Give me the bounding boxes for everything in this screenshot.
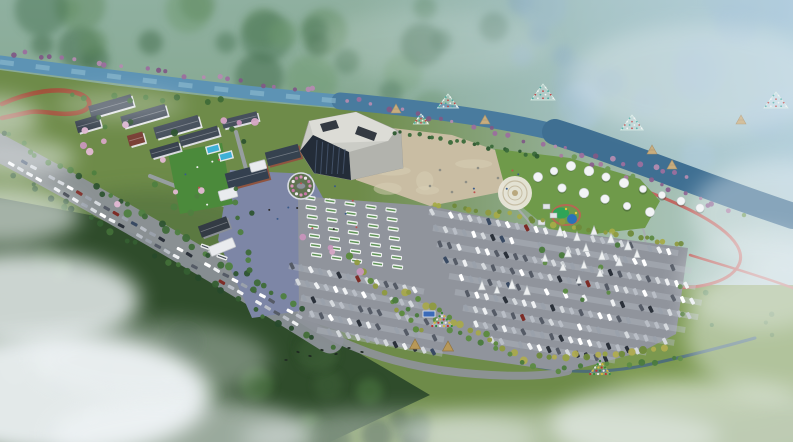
tree [108, 193, 113, 198]
tree [615, 242, 621, 248]
festival-flag [436, 318, 438, 320]
tree [603, 230, 607, 234]
cherry-tree [160, 157, 166, 163]
cherry-tree [220, 117, 227, 124]
tree [289, 326, 294, 331]
tree [651, 347, 656, 352]
riverbank-shrub [39, 55, 44, 60]
tree [406, 307, 411, 312]
tree [124, 209, 132, 217]
tree [598, 265, 603, 270]
tree [182, 234, 190, 242]
person [218, 159, 220, 161]
tree [517, 214, 522, 219]
tree [254, 307, 259, 312]
tree [603, 351, 608, 356]
festival-flag [599, 370, 601, 372]
tree [225, 262, 233, 270]
festival-flag [592, 370, 594, 372]
riverbank-shrub [685, 175, 689, 179]
tree [331, 345, 336, 350]
playground-pond [567, 214, 577, 224]
tree [466, 335, 472, 341]
tree [67, 167, 74, 174]
tree [518, 150, 521, 153]
riverbank-shrub [119, 64, 123, 68]
flower-cluster [290, 184, 293, 187]
gravel-vehicle [429, 185, 432, 188]
tree [171, 203, 178, 210]
tree [184, 268, 191, 275]
tree [619, 351, 625, 357]
riverbank-shrub [72, 57, 76, 61]
tree [229, 126, 235, 132]
tree [678, 241, 683, 246]
tree [680, 312, 685, 317]
tree [408, 318, 413, 323]
riverbank-shrub [541, 142, 546, 147]
riverbank-shrub [239, 78, 243, 82]
person [473, 188, 475, 190]
camp-cabin [550, 213, 557, 218]
tree [520, 360, 525, 365]
tree [546, 355, 551, 360]
prayer-flag [454, 102, 456, 104]
riverbank-shrub [579, 153, 584, 158]
dome-tent [533, 172, 542, 181]
festival-flag [448, 322, 450, 324]
camp-cabin [543, 204, 550, 209]
tree [261, 283, 267, 289]
tree [399, 310, 405, 316]
tree [205, 253, 210, 258]
tree [572, 351, 579, 358]
tree [89, 215, 94, 220]
tree [303, 332, 310, 339]
person [198, 187, 200, 189]
tree [430, 135, 434, 139]
person [511, 169, 513, 171]
tree [188, 210, 194, 216]
forest-texture [314, 371, 343, 400]
person [333, 228, 335, 230]
riverbank-shrub [225, 76, 230, 81]
tree [539, 247, 545, 253]
gravel-patch [455, 159, 492, 168]
person [473, 191, 475, 193]
festival-flag [604, 366, 606, 368]
cherry-tree [329, 249, 335, 255]
tree [552, 355, 557, 360]
festival-flag [601, 363, 603, 365]
flower-cluster [295, 177, 298, 180]
tree [474, 209, 478, 213]
tree [354, 260, 360, 266]
tree [92, 170, 97, 175]
tree [415, 296, 421, 302]
prayer-flag [631, 127, 633, 129]
riverbank-shrub [666, 187, 671, 192]
tree [189, 244, 195, 250]
tree [165, 259, 171, 265]
person [296, 207, 298, 209]
tree [628, 348, 635, 355]
prayer-flag [532, 97, 534, 99]
tree [562, 365, 567, 370]
tree [493, 346, 498, 351]
tree [639, 346, 647, 354]
tree [152, 253, 157, 258]
prayer-flag [438, 106, 440, 108]
prayer-flag [456, 106, 458, 108]
festival-flag [601, 373, 603, 375]
riverbank-shrub [660, 169, 665, 174]
tree [406, 290, 411, 295]
tree [254, 279, 261, 286]
tree [249, 210, 254, 215]
tree [413, 326, 419, 332]
tree [235, 216, 240, 221]
gravel-vehicle [439, 169, 442, 172]
festival-flag [441, 312, 443, 314]
tree [559, 252, 565, 258]
tree [458, 331, 462, 335]
cherry-tree [81, 127, 88, 134]
dome-tent [619, 178, 629, 188]
tree [448, 140, 453, 145]
mandala-center [512, 190, 518, 196]
riverbank-shrub [598, 162, 603, 167]
tree [672, 356, 676, 360]
person [206, 204, 208, 206]
tree [627, 362, 632, 367]
riverbank-shrub [261, 84, 266, 89]
prayer-flag [443, 106, 445, 108]
tree [398, 130, 401, 133]
festival-flag [597, 366, 599, 368]
festival-flag [601, 366, 603, 368]
tree [142, 213, 148, 219]
festival-flag [606, 370, 608, 372]
tree [661, 345, 668, 352]
riverbank-shrub [386, 107, 392, 113]
prayer-flag [419, 120, 421, 122]
riverbank-shrub [610, 156, 616, 162]
person [517, 173, 519, 175]
prayer-flag [547, 90, 549, 92]
person [211, 161, 213, 163]
tree [452, 204, 457, 209]
tree [550, 222, 557, 229]
playground-dot [575, 212, 577, 214]
tree [280, 293, 286, 299]
flower-cluster [292, 180, 295, 183]
prayer-flag [445, 96, 447, 98]
tree [217, 287, 224, 294]
riverbank-shrub [637, 161, 643, 167]
dome-tent [566, 161, 575, 170]
dome-tent [584, 166, 594, 176]
tree [233, 271, 238, 276]
tree [483, 331, 490, 338]
dome-tent [645, 207, 654, 216]
cherry-tree [86, 148, 94, 156]
prayer-flag [447, 106, 449, 108]
festival-flag [431, 325, 433, 327]
flower-cluster [292, 189, 295, 192]
riverbank-shrub [605, 166, 610, 171]
tree [649, 236, 654, 241]
festival-flag [599, 363, 601, 365]
tree [368, 278, 374, 284]
festival-flag [603, 370, 605, 372]
festival-flag [605, 373, 607, 375]
riverbank-shrub [23, 50, 28, 55]
scene-svg [0, 0, 793, 442]
person [184, 173, 186, 175]
prayer-flag [425, 120, 427, 122]
riverbank-shrub [401, 108, 404, 111]
prayer-flag [415, 120, 417, 122]
prayer-flag [420, 122, 422, 124]
prayer-flag [545, 94, 547, 96]
festival-flag [439, 318, 441, 320]
tree [476, 142, 480, 146]
tree [32, 182, 36, 186]
prayer-flag [545, 87, 547, 89]
riverbank-shrub [572, 154, 578, 160]
prayer-flag [452, 99, 454, 101]
tree [638, 235, 643, 240]
riverbank-shrub [522, 140, 526, 144]
cloud [310, 10, 550, 80]
prayer-flag [422, 115, 424, 117]
festival-flag [599, 360, 601, 362]
cherry-tree [114, 201, 120, 207]
prayer-flag [537, 97, 539, 99]
tree [505, 148, 510, 153]
prayer-flag [423, 122, 425, 124]
riverbank-shrub [684, 191, 688, 195]
dome-tent [623, 202, 630, 209]
tree [487, 337, 492, 342]
dome-tent [601, 195, 610, 204]
riverbank-shrub [564, 146, 567, 149]
aerial-site-rendering [0, 0, 793, 442]
prayer-flag [422, 120, 424, 122]
dome-tent [677, 197, 685, 205]
prayer-flag [540, 94, 542, 96]
prayer-flag [552, 97, 554, 99]
person [196, 166, 198, 168]
tree [125, 239, 130, 244]
person [287, 206, 289, 208]
riverbank-shrub [630, 174, 635, 179]
tree [613, 351, 619, 357]
prayer-flag [443, 99, 445, 101]
riverbank-shrub [146, 66, 150, 70]
person [345, 213, 347, 215]
tree [382, 290, 388, 296]
cloud [30, 320, 270, 400]
festival-flag [438, 315, 440, 317]
riverbank-shrub [293, 87, 297, 91]
tree [309, 335, 314, 340]
riverbank-shrub [357, 97, 362, 102]
prayer-flag [449, 102, 451, 104]
tree [152, 181, 158, 187]
tree [133, 240, 138, 245]
tree [260, 314, 264, 318]
tree [212, 281, 219, 288]
flower-cluster [307, 180, 310, 183]
tree [530, 218, 536, 224]
riverbank-shrub [492, 131, 497, 136]
tree [660, 239, 665, 244]
tree [473, 143, 477, 147]
festival-flag [443, 325, 445, 327]
riverbank-shrub [11, 52, 17, 58]
tree [408, 133, 412, 137]
riverbank-shrub [654, 164, 660, 170]
tree [652, 360, 658, 366]
dome-tent [602, 173, 610, 181]
tree [485, 210, 491, 216]
cloud [55, 91, 185, 119]
tree [507, 211, 512, 216]
prayer-flag [542, 90, 544, 92]
riverbank-shrub [181, 74, 186, 79]
tree [392, 297, 399, 304]
festival-flag [435, 325, 437, 327]
person [355, 226, 357, 228]
tree [530, 363, 536, 369]
cherry-tree [251, 118, 259, 126]
person [506, 188, 508, 190]
tree [536, 353, 542, 359]
tree [507, 352, 512, 357]
tree [605, 361, 609, 365]
riverbank-shrub [450, 120, 453, 123]
yak [347, 347, 350, 349]
tree [290, 301, 297, 308]
prayer-flag [445, 102, 447, 104]
person [329, 198, 331, 200]
tree [447, 327, 453, 333]
tree [490, 145, 494, 149]
tree [486, 146, 490, 150]
tree [175, 229, 181, 235]
gravel-vehicle [477, 167, 480, 170]
tree [494, 341, 499, 346]
festival-flag [441, 322, 443, 324]
tree [466, 207, 472, 213]
festival-flag [596, 363, 598, 365]
prayer-flag [452, 106, 454, 108]
festival-flag [434, 322, 436, 324]
festival-flag [446, 318, 448, 320]
flower-cluster [308, 184, 311, 187]
prayer-flag [542, 97, 544, 99]
prayer-flag [547, 97, 549, 99]
tree [176, 262, 181, 267]
festival-flag [437, 322, 439, 324]
flower-cluster [299, 193, 302, 196]
riverbank-shrub [439, 117, 443, 121]
prayer-flag [420, 118, 422, 120]
tree [595, 352, 601, 358]
festival-flag [443, 315, 445, 317]
riverbank-shrub [649, 177, 654, 182]
tree [299, 306, 305, 312]
riverbank-shrub [202, 75, 206, 79]
person [268, 209, 270, 211]
prayer-flag [540, 87, 542, 89]
dome-tent [579, 188, 589, 198]
cherry-tree [122, 121, 129, 128]
flower-cluster [304, 177, 307, 180]
tree [415, 313, 419, 317]
prayer-flag [626, 127, 628, 129]
prayer-flag [417, 122, 419, 124]
tree [106, 228, 113, 235]
tree [645, 235, 649, 239]
tree [232, 200, 238, 206]
tree [241, 139, 246, 144]
tree [497, 210, 502, 215]
prayer-flag [427, 122, 429, 124]
playground-dot [565, 208, 567, 210]
riverbank-shrub [621, 162, 625, 166]
riverbank-shrub [660, 183, 663, 186]
tree [234, 187, 239, 192]
person [277, 218, 279, 220]
riverbank-shrub [505, 133, 510, 138]
tree [524, 153, 528, 157]
tree [583, 354, 590, 361]
person [311, 227, 313, 229]
tree [456, 321, 464, 329]
tree [535, 154, 540, 159]
riverbank-shrub [163, 69, 167, 73]
flower-cluster [304, 192, 307, 195]
riverbank-shrub [593, 153, 598, 158]
riverbank-shrub [310, 86, 315, 91]
tree [613, 232, 619, 238]
prayer-flag [423, 118, 425, 120]
prayer-flag [417, 118, 419, 120]
tree [162, 226, 170, 234]
flower-cluster [299, 175, 302, 178]
gravel-vehicle [451, 191, 454, 194]
tree [461, 139, 465, 143]
cherry-tree [237, 120, 242, 125]
riverbank-shrub [59, 55, 63, 59]
tree [559, 218, 565, 224]
festival-flag [439, 325, 441, 327]
prayer-flag [419, 115, 421, 117]
festival-flag [597, 373, 599, 375]
tree [419, 328, 424, 333]
tree [194, 194, 199, 199]
tree [556, 369, 561, 374]
riverbank-shrub [554, 145, 557, 148]
blue-banner [423, 311, 435, 317]
tree [541, 218, 545, 222]
riverbank-shrub [559, 154, 563, 158]
tree [578, 363, 583, 368]
festival-flag [595, 370, 597, 372]
